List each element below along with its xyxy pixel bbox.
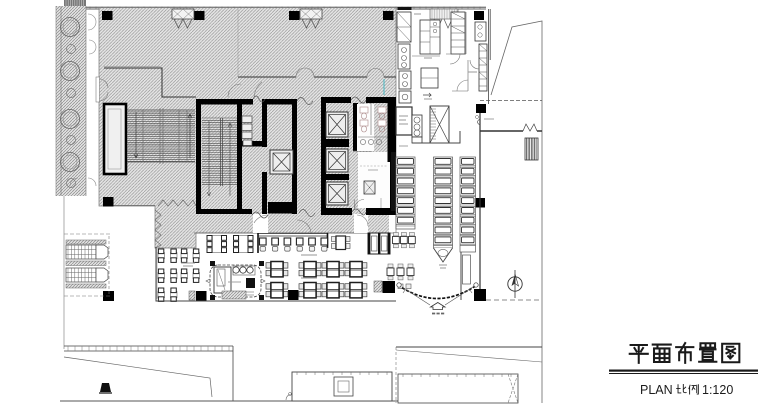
svg-text:PLAN: PLAN [640,383,673,397]
svg-text:1:120: 1:120 [702,383,733,397]
